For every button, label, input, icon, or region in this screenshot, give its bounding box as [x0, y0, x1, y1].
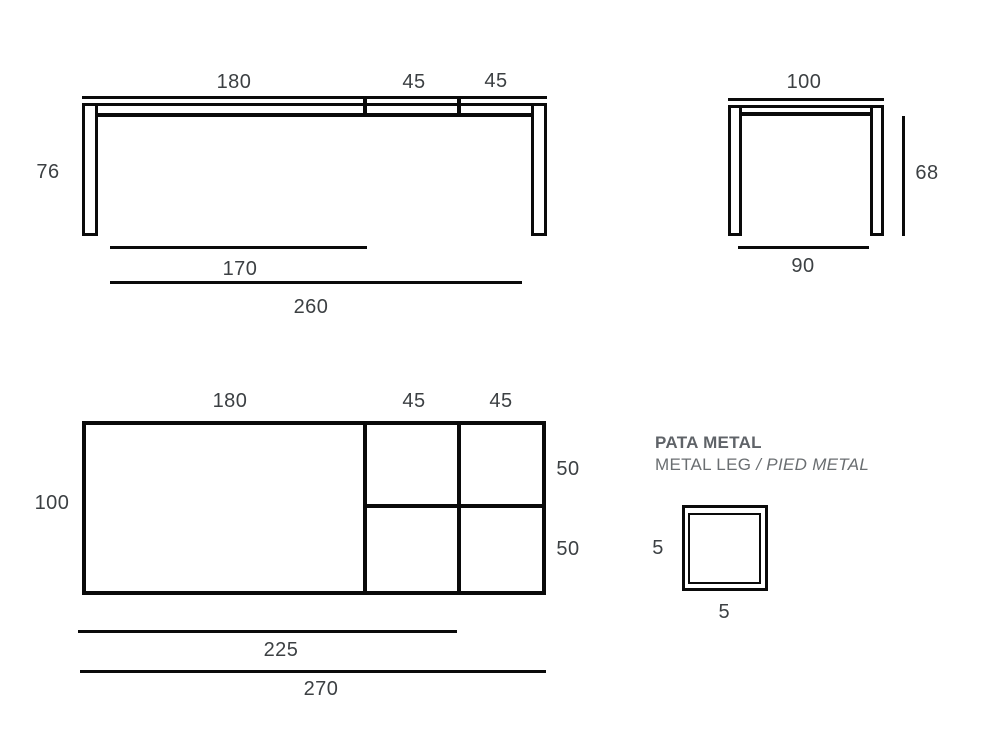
front-view-dim-line-260 [110, 281, 522, 284]
front-view-right-leg [531, 97, 547, 236]
front-view-dim-45-a: 45 [402, 72, 425, 92]
leg-detail-title-en: METAL LEG [655, 455, 751, 474]
side-view-dim-90: 90 [791, 256, 814, 276]
side-view-dim-line-68 [902, 116, 905, 236]
leg-detail-inner-square [688, 513, 761, 584]
top-view-leaf-split-line [363, 504, 546, 508]
side-view-dim-68: 68 [915, 163, 938, 183]
side-view-left-leg [728, 99, 742, 236]
top-view-dim-100: 100 [35, 493, 70, 513]
front-view-dim-45-b: 45 [484, 71, 507, 91]
front-view-left-leg [82, 97, 98, 236]
top-view-dim-line-225 [78, 630, 457, 633]
front-view-dim-76: 76 [36, 162, 59, 182]
leg-detail-title-es: PATA METAL [655, 433, 762, 453]
spec-sheet: 180 45 45 76 170 260 100 68 90 [0, 0, 1000, 750]
leg-detail-dim-5-left: 5 [652, 538, 664, 558]
leg-detail-title-fr: / PIED METAL [751, 455, 869, 474]
top-view-dim-180: 180 [213, 391, 248, 411]
side-view-apron-line [741, 112, 871, 116]
side-view-dim-line-90 [738, 246, 869, 249]
front-view-dim-line-170 [110, 246, 367, 249]
side-view-right-leg [870, 99, 884, 236]
top-view-dim-50-a: 50 [556, 459, 579, 479]
front-view-apron-line [97, 113, 532, 117]
leg-detail-title-en-fr: METAL LEG / PIED METAL [655, 455, 869, 475]
leg-detail-dim-5-bottom-clipped: 5 [714, 602, 734, 619]
top-view-dim-45-a: 45 [402, 391, 425, 411]
top-view-dim-225: 225 [264, 640, 299, 660]
side-view-dim-100: 100 [787, 72, 822, 92]
top-view-dim-line-270 [80, 670, 546, 673]
top-view-leaf-divider-2 [457, 421, 461, 595]
top-view-dim-270: 270 [304, 679, 339, 699]
front-view-leaf-divider-1 [363, 96, 367, 117]
side-view-tabletop [728, 98, 884, 108]
front-view-dim-260: 260 [294, 297, 329, 317]
top-view-dim-50-b: 50 [556, 539, 579, 559]
front-view-tabletop [82, 96, 547, 106]
top-view-leaf-divider-1 [363, 421, 367, 595]
front-view-dim-170: 170 [223, 259, 258, 279]
front-view-leaf-divider-2 [457, 96, 461, 117]
top-view-dim-45-b: 45 [489, 391, 512, 411]
top-view-tabletop-rect [82, 421, 546, 595]
front-view-dim-180: 180 [217, 72, 252, 92]
